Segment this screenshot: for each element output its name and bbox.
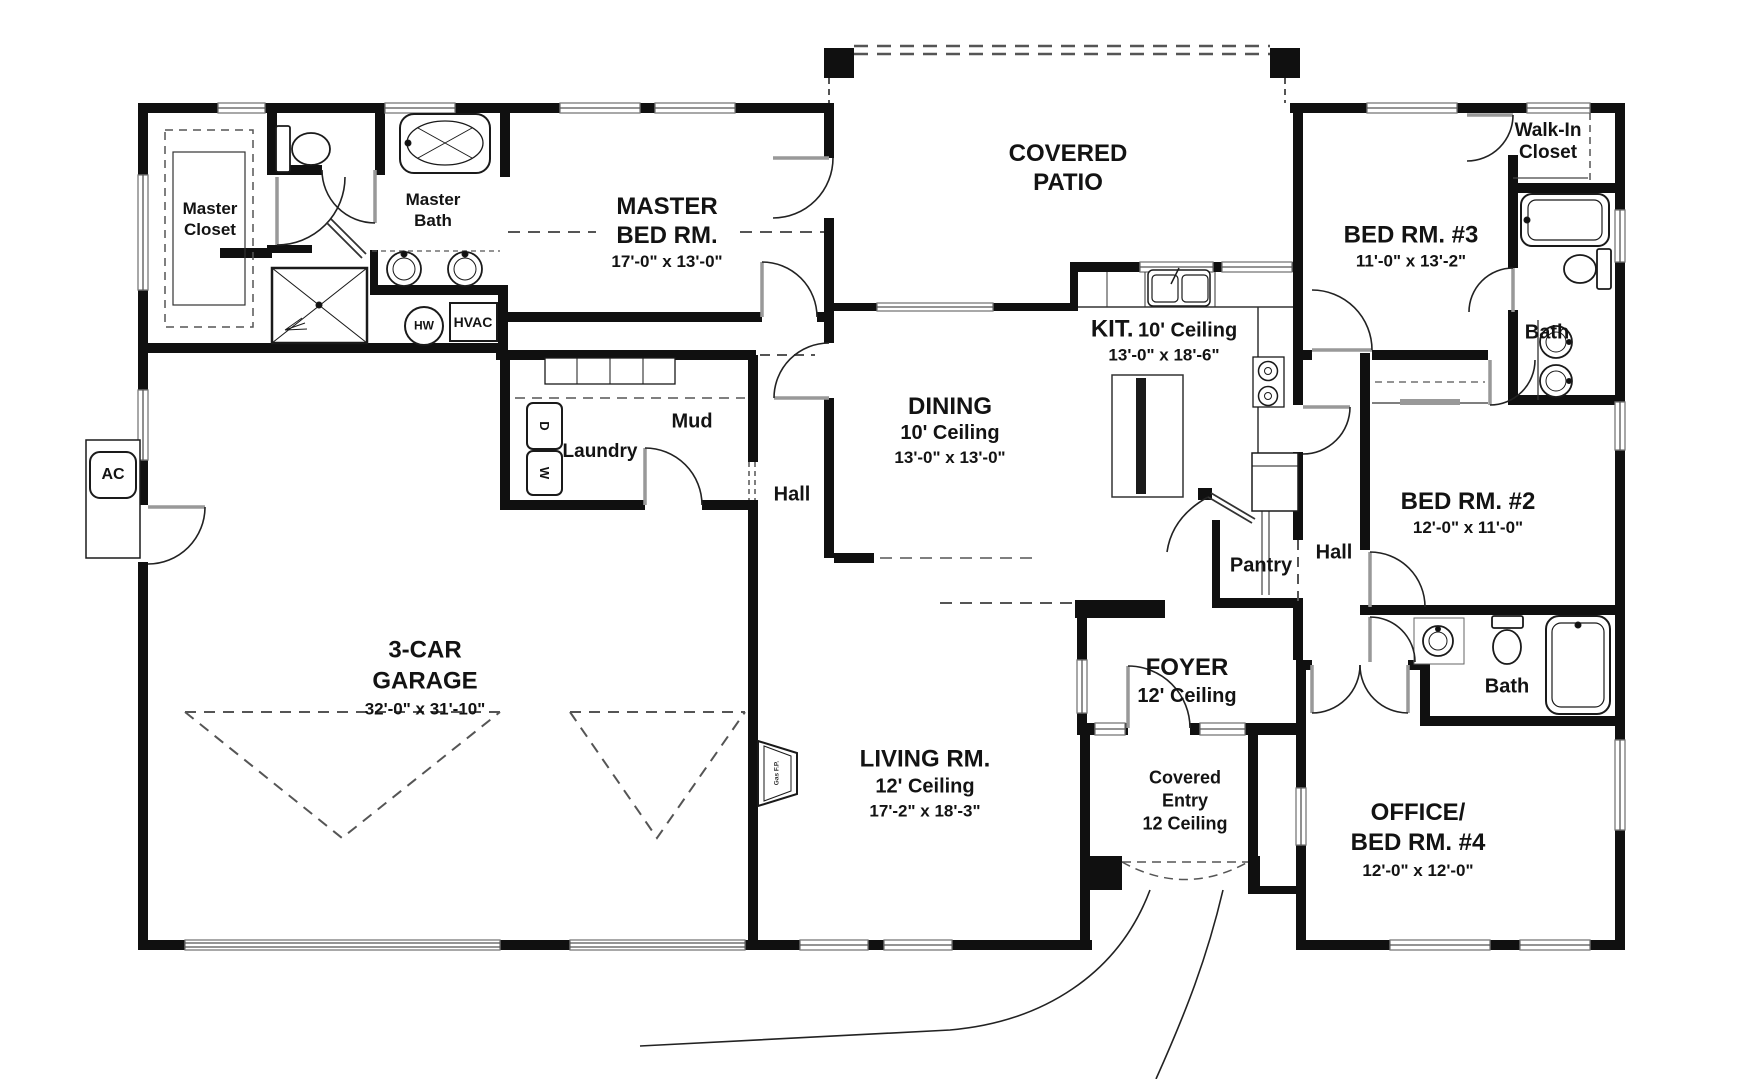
bathtub-icon (1521, 194, 1609, 246)
room-label-living: LIVING RM. 12' Ceiling 17'-2" x 18'-3" (860, 745, 991, 824)
room-label-garage: 3-CAR GARAGE 32'-0" x 31'-10" (365, 635, 486, 722)
room-label-hall-east: Hall (1316, 541, 1353, 566)
sink-icon (387, 251, 482, 286)
sink-icon (1414, 618, 1464, 664)
room-label-master-bedroom: MASTER BED RM. 17'-0" x 13'-0" (611, 192, 722, 274)
walkway-lines (640, 890, 1223, 1079)
fixtures-layer (86, 114, 1611, 806)
room-label-master-closet: MasterCloset (183, 198, 238, 240)
room-label-bath-lower: Bath (1485, 675, 1529, 700)
bathtub-icon (400, 114, 490, 173)
kitchen-sink-icon (1148, 268, 1210, 306)
room-label-laundry: Laundry (563, 441, 638, 463)
water-heater-label: HW (414, 320, 434, 333)
ac-label: AC (101, 466, 124, 484)
doors-layer (148, 115, 1535, 728)
dryer-label: D (537, 421, 551, 430)
door-swings (148, 115, 1535, 728)
patio-post-icon (1270, 48, 1300, 78)
hvac-label: HVAC (454, 314, 493, 330)
toilet-icon (1564, 249, 1611, 289)
room-label-covered-patio: COVEREDPATIO (1009, 139, 1128, 197)
room-label-pantry: Pantry (1230, 554, 1292, 579)
fireplace-label: Gas F.P. (774, 761, 781, 785)
patio-post-icon (824, 48, 854, 78)
room-label-foyer: FOYER 12' Ceiling (1137, 652, 1236, 708)
room-label-bedroom2: BED RM. #2 12'-0" x 11'-0" (1401, 488, 1536, 540)
bathtub-icon (1546, 616, 1610, 714)
floor-plan: MasterCloset MasterBath MASTER BED RM. 1… (0, 0, 1747, 1079)
kitchen-island-icon (1112, 375, 1183, 497)
room-label-covered-entry: Covered Entry 12 Ceiling (1142, 767, 1227, 836)
ac-unit-icon (86, 440, 140, 558)
room-label-hall-center: Hall (774, 483, 811, 508)
room-label-mud: Mud (671, 410, 712, 435)
shower-icon (272, 268, 367, 343)
closet-slider-icon (1400, 399, 1460, 405)
washer-label: W (537, 467, 551, 479)
room-label-bedroom3: BED RM. #3 11'-0" x 13'-2" (1344, 221, 1479, 274)
room-label-kitchen: KIT. 10' Ceiling 13'-0" x 18'-6" (1091, 315, 1237, 368)
room-label-dining: DINING 10' Ceiling 13'-0" x 13'-0" (894, 393, 1005, 469)
room-label-master-bath: MasterBath (406, 189, 461, 231)
room-label-walk-in-closet: Walk-InCloset (1515, 120, 1582, 164)
stove-icon (1253, 357, 1284, 407)
oven-icon (1252, 453, 1298, 511)
room-label-office: OFFICE/ BED RM. #4 12'-0" x 12'-0" (1351, 798, 1486, 884)
mud-bench-icon (545, 358, 675, 384)
toilet-icon (1492, 616, 1523, 664)
room-label-bath-upper: Bath (1525, 321, 1569, 346)
